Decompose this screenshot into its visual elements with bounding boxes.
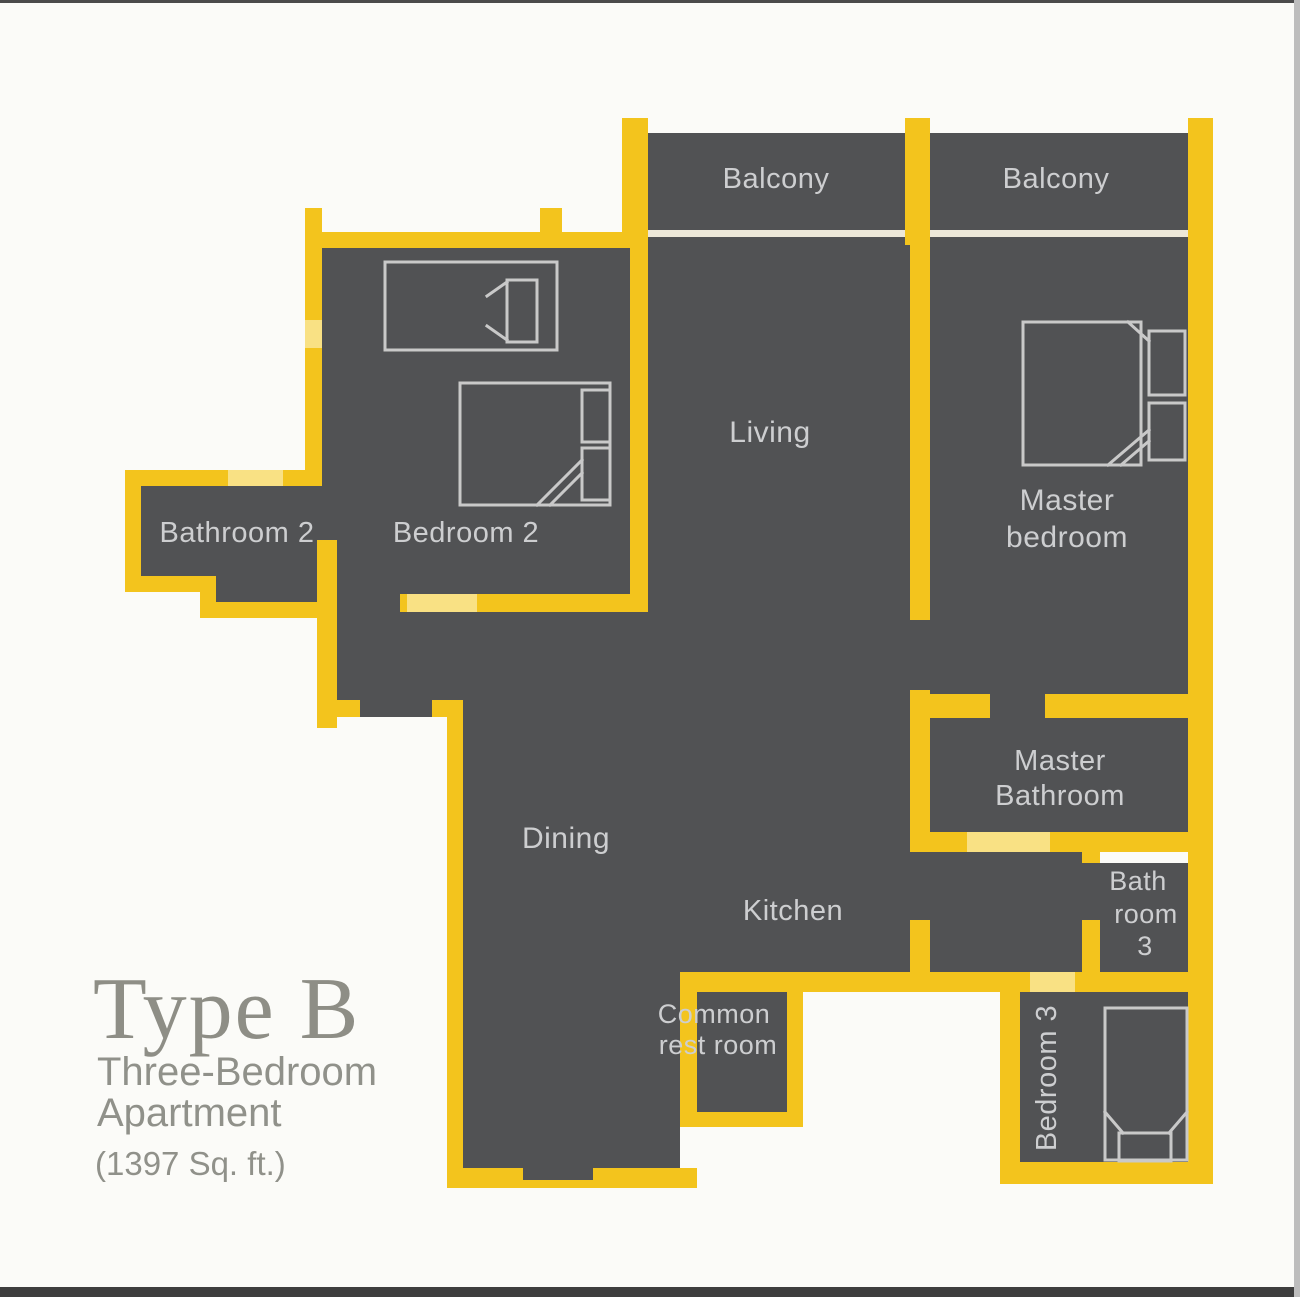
wall-bathroom3-stub (1082, 838, 1100, 863)
floor-kitchen-doorway (910, 852, 930, 920)
bedroom2-door (407, 594, 477, 612)
wall-stub-top-left (305, 208, 322, 234)
room-label-master-bathroom-line1: Master (1014, 745, 1106, 777)
wall-bottom-right (1000, 1162, 1213, 1184)
floor-dining-lower (462, 972, 680, 1168)
wall-bottom-band (680, 972, 1188, 992)
floor-right-corridor (930, 852, 1082, 972)
room-label-living: Living (729, 416, 810, 449)
floor-corridor-door-recess (360, 700, 432, 717)
room-label-bedroom2: Bedroom 2 (393, 517, 539, 549)
wall-balcony-pillar-right (1188, 118, 1213, 245)
balcony-left-glass-door (648, 230, 905, 237)
border-top (0, 0, 1300, 3)
room-label-balcony-right: Balcony (1003, 163, 1110, 195)
room-label-master-bathroom-line2: Bathroom (995, 780, 1125, 812)
floor-plan-canvas: Balcony Balcony Living Master bedroom Ba… (0, 0, 1300, 1297)
bathroom2-door (228, 470, 283, 486)
wall-corridor-left (317, 540, 337, 728)
room-label-master-bedroom-line1: Master (1020, 484, 1115, 517)
wall-living-master-mid (910, 690, 930, 852)
wall-living-master-upper (910, 237, 930, 620)
wall-jog-left (317, 700, 360, 717)
floor-bathroom3-doorway (1082, 863, 1100, 920)
room-label-kitchen: Kitchen (743, 895, 843, 927)
border-bottom (0, 1287, 1300, 1297)
room-label-balcony-left: Balcony (723, 163, 830, 195)
entry-door-recess (523, 1168, 593, 1180)
room-label-bedroom3: Bedroom 3 (1031, 1005, 1063, 1151)
room-label-dining: Dining (522, 822, 610, 855)
balcony-right-glass-door (930, 230, 1188, 237)
plan-subtitle-line1: Three-Bedroom (97, 1050, 377, 1094)
wall-bedroom2-left (305, 248, 322, 486)
plan-type-title: Type B (93, 961, 360, 1058)
wall-bathroom3-left (1082, 920, 1100, 972)
wall-bedroom3-left (1000, 992, 1020, 1184)
wall-right-exterior (1188, 237, 1213, 1184)
room-label-common-restroom-line1: Common (658, 999, 771, 1029)
floor-plan-page: Balcony Balcony Living Master bedroom Ba… (0, 0, 1300, 1297)
wall-balcony-pillar-middle (905, 118, 930, 245)
wall-bathroom2-step-vertical (200, 576, 216, 618)
wall-master-divider-right (1045, 694, 1188, 718)
border-right (1294, 0, 1300, 1297)
room-label-common-restroom-line2: rest room (659, 1030, 778, 1060)
plan-subtitle-line2: Apartment (97, 1091, 282, 1135)
floor-master-bathroom-doorway (990, 694, 1045, 718)
wall-bedroom2-top (305, 232, 648, 248)
wall-balcony-pillar-left (622, 118, 648, 245)
wall-master-divider-left (930, 694, 990, 718)
title-block: Type B Three-Bedroom Apartment (1397 Sq.… (93, 961, 377, 1182)
room-label-bathroom3-line3: 3 (1137, 931, 1153, 961)
floor-bathroom2-doorway (317, 486, 337, 540)
wall-common-bottom (680, 1112, 803, 1127)
wall-stub-top-middle (540, 208, 562, 248)
plan-area-label: (1397 Sq. ft.) (95, 1145, 286, 1182)
room-label-bathroom3-line2: room (1114, 899, 1178, 929)
room-label-master-bedroom-line2: bedroom (1006, 521, 1128, 554)
bedroom3-door (1030, 972, 1075, 992)
wall-common-right (787, 992, 803, 1112)
floor-master-bedroom-doorway (910, 620, 930, 690)
wall-bedroom2-living (630, 237, 648, 612)
master-bathroom-door (967, 832, 1050, 852)
wall-bathroom2-top (125, 470, 322, 486)
bedroom2-window (305, 320, 322, 348)
room-label-bathroom2: Bathroom 2 (160, 517, 315, 549)
wall-dining-left (447, 700, 463, 1188)
floor-bedroom2 (322, 248, 648, 612)
room-label-bathroom3-line1: Bath (1109, 866, 1167, 896)
